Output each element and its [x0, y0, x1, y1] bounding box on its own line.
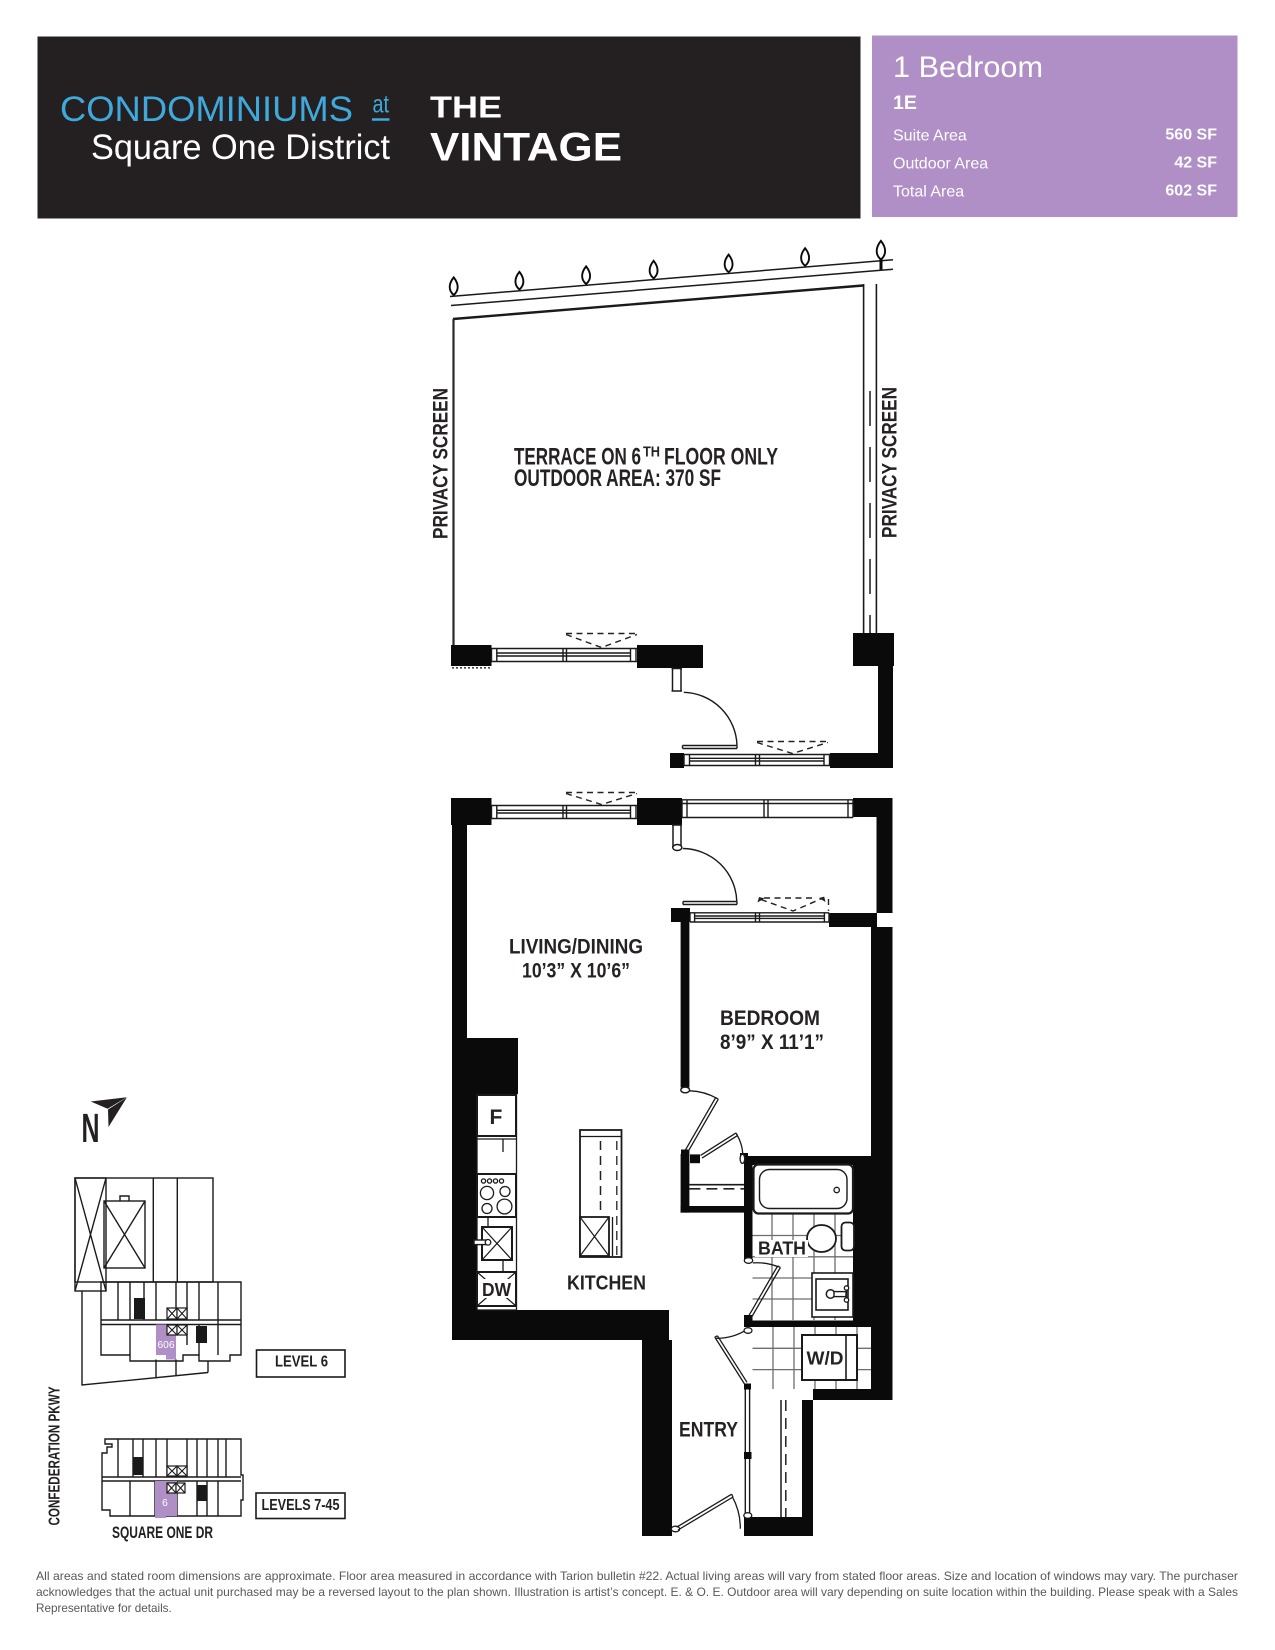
svg-text:Outdoor Area: Outdoor Area	[893, 156, 988, 173]
svg-text:KITCHEN: KITCHEN	[567, 1272, 646, 1295]
svg-text:F: F	[490, 1106, 503, 1129]
svg-text:CONDOMINIUMS: CONDOMINIUMS	[60, 89, 353, 129]
svg-text:606: 606	[158, 1339, 175, 1351]
svg-text:at: at	[373, 91, 390, 119]
svg-text:THE: THE	[430, 90, 502, 125]
svg-text:VINTAGE: VINTAGE	[430, 126, 622, 170]
svg-text:BATH: BATH	[758, 1239, 806, 1259]
svg-text:PRIVACY SCREEN: PRIVACY SCREEN	[879, 387, 902, 538]
svg-text:560 SF: 560 SF	[1165, 127, 1217, 144]
svg-text:1E: 1E	[893, 92, 917, 114]
svg-text:DW: DW	[482, 1280, 511, 1300]
svg-text:Square One District: Square One District	[91, 127, 390, 167]
svg-text:LEVELS 7-45: LEVELS 7-45	[262, 1497, 340, 1514]
svg-text:TH: TH	[643, 444, 660, 461]
svg-text:1 Bedroom: 1 Bedroom	[893, 51, 1043, 84]
svg-text:BEDROOM: BEDROOM	[720, 1006, 820, 1030]
svg-text:6: 6	[162, 1497, 168, 1509]
svg-text:N: N	[82, 1105, 100, 1151]
svg-text:LEVEL 6: LEVEL 6	[275, 1354, 328, 1371]
svg-text:LIVING/DINING: LIVING/DINING	[509, 935, 643, 959]
svg-text:602 SF: 602 SF	[1165, 183, 1217, 200]
svg-text:10’3” X 10’6”: 10’3” X 10’6”	[522, 959, 630, 983]
svg-text:PRIVACY SCREEN: PRIVACY SCREEN	[430, 388, 453, 539]
svg-text:SQUARE ONE DR: SQUARE ONE DR	[112, 1524, 213, 1542]
svg-text:42 SF: 42 SF	[1174, 155, 1217, 172]
svg-text:8’9” X 11’1”: 8’9” X 11’1”	[720, 1030, 824, 1054]
svg-text:W/D: W/D	[807, 1349, 844, 1369]
svg-text:ENTRY: ENTRY	[679, 1418, 738, 1442]
svg-text:Suite Area: Suite Area	[893, 128, 967, 145]
svg-text:OUTDOOR AREA: 370 SF: OUTDOOR AREA: 370 SF	[514, 465, 721, 492]
svg-text:Total Area: Total Area	[893, 184, 964, 201]
svg-text:Representative for details.: Representative for details.	[36, 1602, 172, 1615]
svg-text:CONFEDERATION PKWY: CONFEDERATION PKWY	[47, 1386, 64, 1525]
svg-text:acknowledges that the actual u: acknowledges that the actual unit purcha…	[36, 1586, 1238, 1599]
svg-text:All areas and stated room dime: All areas and stated room dimensions are…	[36, 1570, 1238, 1583]
